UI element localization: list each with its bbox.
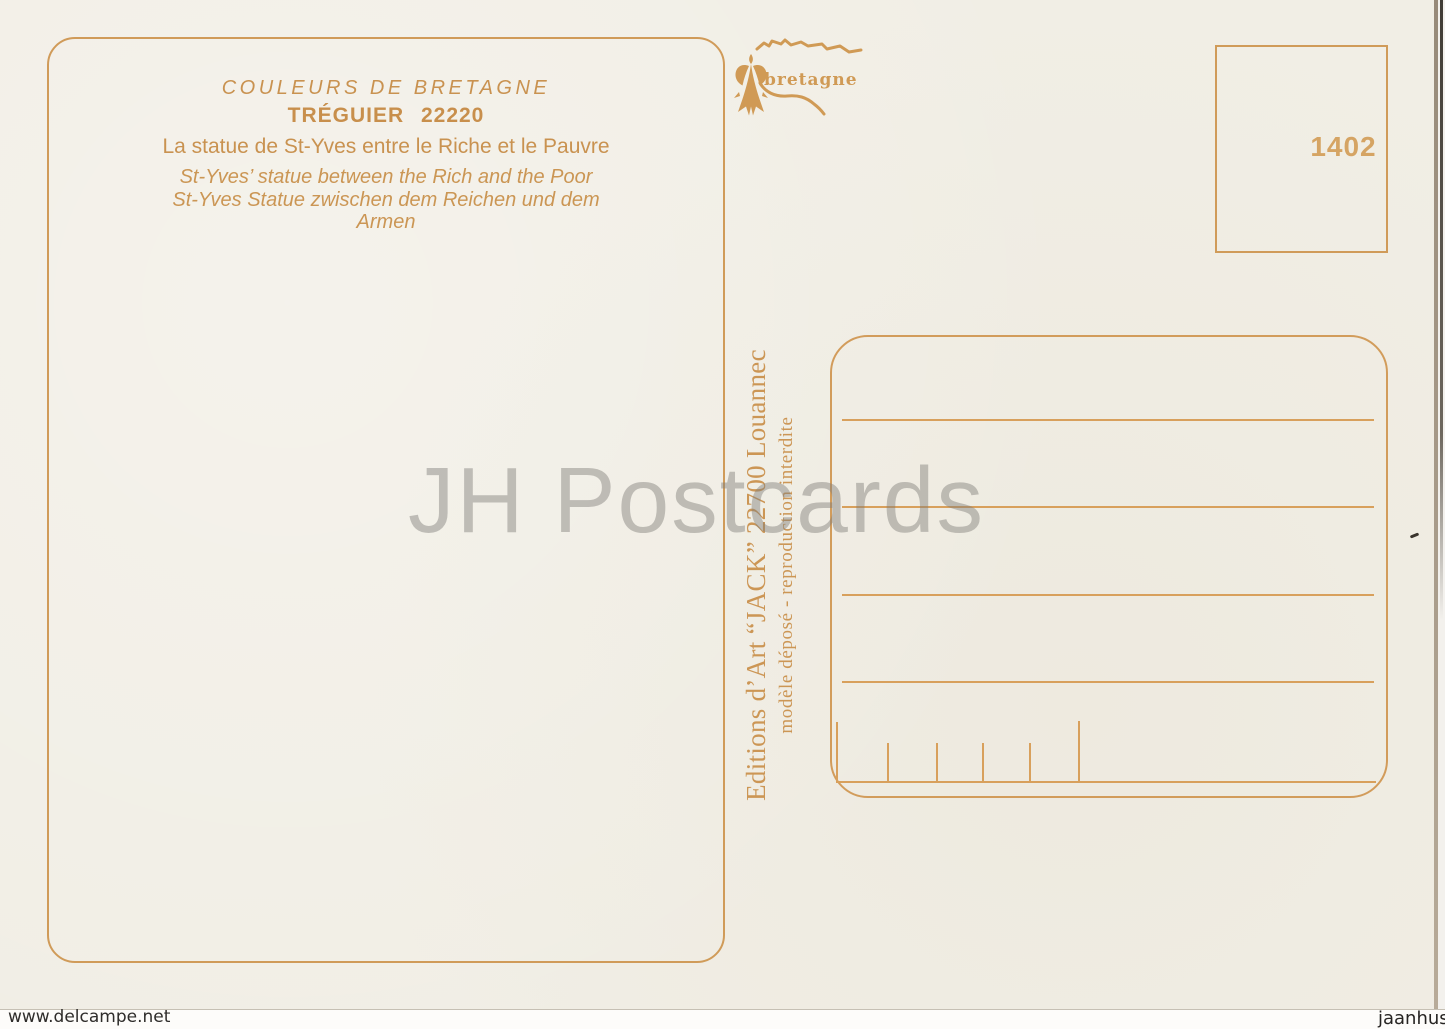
scan-background-bottom bbox=[0, 1009, 1445, 1029]
watermark-jaanhus: jaanhus bbox=[1378, 1008, 1445, 1029]
postal-code-ruler bbox=[836, 781, 1376, 783]
address-line bbox=[842, 681, 1374, 683]
bretagne-logo: bretagne bbox=[724, 36, 884, 131]
publisher-name: Editions d’Art “JACK” 22700 Louannec bbox=[740, 315, 772, 835]
postal-tick-tall bbox=[1078, 721, 1080, 783]
logo-text: bretagne bbox=[764, 70, 858, 90]
postal-tick bbox=[936, 743, 938, 783]
scan-speck bbox=[1410, 532, 1419, 538]
ermine-icon bbox=[734, 54, 768, 116]
coastline-north-icon bbox=[757, 40, 861, 52]
caption-german-line2: Armen bbox=[56, 211, 716, 234]
town-title: TRÉGUIER 22220 bbox=[56, 104, 716, 128]
postal-tick bbox=[982, 743, 984, 783]
caption-french: La statue de St-Yves entre le Riche et l… bbox=[56, 135, 716, 159]
watermark-center: JH Postcards bbox=[408, 447, 985, 554]
scan-edge-line bbox=[1440, 0, 1443, 620]
series-title: COULEURS DE BRETAGNE bbox=[56, 77, 716, 100]
address-box bbox=[830, 335, 1388, 798]
publisher-credit: Editions d’Art “JACK” 22700 Louannec mod… bbox=[740, 315, 814, 835]
postal-tick-tall bbox=[836, 722, 838, 783]
address-line bbox=[842, 419, 1374, 421]
caption-german-line1: St-Yves Statue zwischen dem Reichen und … bbox=[56, 189, 716, 212]
stamp-number: 1402 bbox=[1259, 131, 1428, 163]
postal-tick bbox=[887, 743, 889, 783]
address-line bbox=[842, 594, 1374, 596]
watermark-delcampe: www.delcampe.net bbox=[8, 1007, 170, 1027]
postal-tick bbox=[1029, 743, 1031, 783]
publisher-notice: modèle déposé - reproduction interdite bbox=[775, 315, 799, 835]
stamp-box: 1402 bbox=[1215, 45, 1388, 253]
caption-english: St-Yves’ statue between the Rich and the… bbox=[56, 166, 716, 189]
